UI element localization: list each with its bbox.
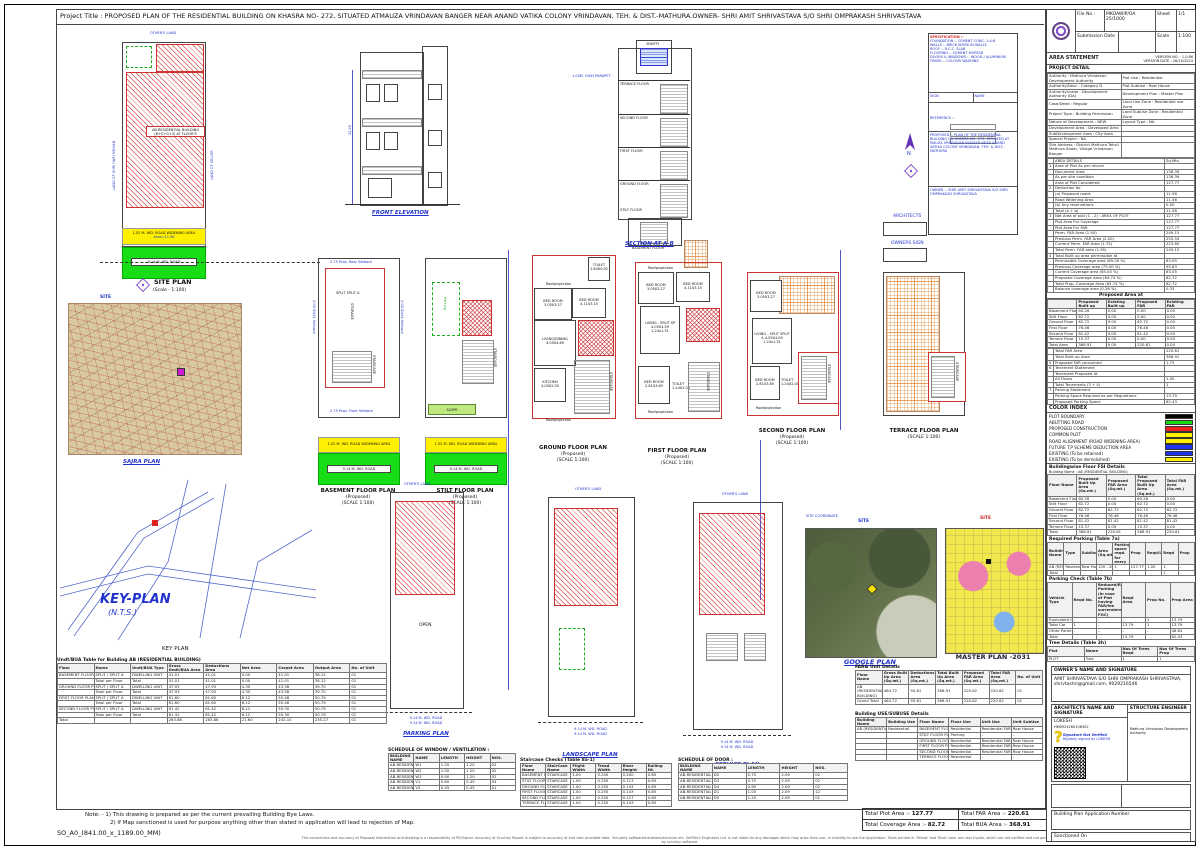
terrace-staircase xyxy=(931,356,955,398)
table-cell: Tree xyxy=(1084,656,1121,662)
use-subuse-block: Building USE/SUBUSE Details Building Nam… xyxy=(855,712,1043,761)
reference-label: REFERENCE :- xyxy=(930,116,954,120)
table-cell: 263.86 xyxy=(167,718,204,724)
table-cell: Project Type : Building Permission xyxy=(1048,110,1122,120)
parking-road2: 9.14 M. WD. ROAD xyxy=(390,721,462,725)
table-cell: - xyxy=(980,755,1011,761)
table-cell: Proposed Built up xyxy=(1077,299,1106,308)
table-cell: AB-RESIDENTIAL BUILDING xyxy=(389,769,414,775)
table-cell xyxy=(1145,570,1161,576)
svg-text:N: N xyxy=(907,151,911,156)
table-cell: NAME xyxy=(712,764,746,773)
parking-road1: 9.14 M. WD. ROAD xyxy=(390,716,462,720)
table-row: Total263.86263.8621.60242.10235.2701 xyxy=(58,718,387,724)
table-cell xyxy=(1048,299,1077,308)
table-cell: 464.72 xyxy=(882,699,909,705)
stilt-slope-label: SLOPE xyxy=(429,405,475,412)
table-cell: Ground Floor xyxy=(1048,507,1077,513)
table-cell xyxy=(1064,570,1080,576)
project-title: Project Title : PROPOSED PLAN OF THE RES… xyxy=(60,12,921,20)
table-row: Floor NameProposed Built Up Area (Sq.mt.… xyxy=(1048,474,1195,496)
total-plot-area-label: Total Plot Area :- xyxy=(865,811,910,817)
table-cell: 235.27 xyxy=(313,718,350,724)
stilt-road-strip: 9.14 M. WD. ROAD xyxy=(425,453,507,485)
first-bed2-label: BED ROOM 4.11X3.15 xyxy=(677,273,709,290)
first-bed1-label: BED ROOM 3.05X3.27 xyxy=(639,273,673,291)
architects-sign-box xyxy=(883,222,927,236)
second-toilet-label: TOILET 1.24X2.00 xyxy=(781,378,795,386)
landscape-others-land: OTHER'S LAND xyxy=(575,487,601,491)
total-far-area-label: Total FAR Area :- xyxy=(961,811,1006,817)
table-cell: 220.62 xyxy=(989,684,1016,699)
second-terrace-hatch xyxy=(779,276,835,314)
structure-engineer-title: STRUCTURE ENGINEER xyxy=(1128,705,1190,713)
table-cell: 263.86 xyxy=(204,718,241,724)
table-cell: NOS. xyxy=(814,764,848,773)
authority-logo xyxy=(1052,22,1070,40)
color-index-label: EXISTING (To be retained) xyxy=(1049,451,1103,456)
submission-date-label: Submission Date xyxy=(1076,32,1119,53)
file-no-value: MKOAWIP/OA 25/1000 xyxy=(1105,10,1156,31)
first-living-label: LIVING - SPLIT SP 4.05X4.09 xyxy=(641,307,679,329)
table-cell: Residential xyxy=(949,755,980,761)
table-row: Vehicle TypeReqd No.Reduced/Reqd Parking… xyxy=(1048,583,1195,618)
table-cell: - xyxy=(1178,570,1194,576)
table-cell: Parking space reqd. for every xyxy=(1113,542,1129,564)
second-bed3-label: BED ROOM 2.81X3.65 xyxy=(751,367,779,386)
table-cell: Total xyxy=(58,718,95,724)
master-plan-title: MASTER PLAN -2031 xyxy=(940,654,1046,662)
stilt-road-label: 9.14 M. WD. ROAD xyxy=(434,465,498,473)
ground-toilet-label: TOILET 1.84X0.92 xyxy=(589,258,609,271)
elevation-window xyxy=(384,132,398,150)
table-row: Total13.7962.43 xyxy=(1048,634,1195,640)
architect-box-title: ARCHITECTS NAME AND SIGNATURE xyxy=(1052,705,1127,718)
site-road-widening-strip: 1.52 M. WD. ROAD WIDENING AREA Area=11.5… xyxy=(122,228,206,245)
table-cell: Proposed FAR xyxy=(1136,299,1165,308)
second-title: SECOND FLOOR PLAN xyxy=(740,428,844,434)
project-title-bar: Project Title : PROPOSED PLAN OF THE RES… xyxy=(56,9,1044,25)
table-cell: Residential xyxy=(1064,564,1080,570)
ground-line xyxy=(345,204,460,205)
first-scale: (SCALE 1:100) xyxy=(628,461,726,466)
elevation-door xyxy=(368,178,392,198)
stilt-hatch-block xyxy=(462,300,492,336)
door-schedule-block: SCHEDULE OF DOOR : BUILDING NAMENAMELENG… xyxy=(678,758,848,801)
table-cell: DWELLING UNIT xyxy=(131,695,168,701)
table-row: Proposed Coverage Area (64.74 %)82.72 xyxy=(1048,275,1195,281)
parking-building-hatch xyxy=(395,501,455,595)
table-cell: Railing Ht. xyxy=(646,764,671,773)
table-cell: SubDevelopment Area : City Area xyxy=(1048,131,1122,137)
table-cell: TERRACE FLOOR PLAN xyxy=(521,801,546,807)
landscape-plot xyxy=(548,497,635,717)
table-cell: 220.62 xyxy=(962,684,989,699)
ground-kitchen: KITCHEN 4.05X2.55 xyxy=(534,368,566,402)
color-index-label: PROPOSED CONSTRUCTION xyxy=(1049,426,1107,431)
color-index-label: PLOT BOUNDARY xyxy=(1049,414,1084,419)
owner-box-title: OWNER'S NAME AND SIGNATURE xyxy=(1052,667,1190,675)
first-bed3: BED ROOM 2.81X3.65 xyxy=(638,366,670,404)
table-cell: 0.00 xyxy=(1165,342,1194,348)
door-schedule-table: BUILDING NAMENAMELENGTHHEIGHTNOS.AB-RESI… xyxy=(678,763,848,801)
table-cell: 01 xyxy=(490,785,515,791)
table-cell: 1.00 xyxy=(571,801,596,807)
total-plot-area: Total Plot Area :- 127.77 xyxy=(863,809,959,819)
sign-row: SIGN NAME xyxy=(929,93,1017,103)
basement-building: STORAGE SPLIT SPLIT A STAIRCASE xyxy=(325,268,385,388)
table-cell: StairCase Name xyxy=(546,764,571,773)
table-row: Site Address : District Mathura Tehsil M… xyxy=(1048,142,1195,157)
table-cell: GROUND FLOOR PLAN xyxy=(58,684,95,690)
service-plot xyxy=(693,502,783,730)
table-cell: AB (RESIDENTIAL BUILDING) xyxy=(856,684,883,699)
table-cell: Total xyxy=(1048,530,1077,536)
table-cell: Ground Floor xyxy=(1048,320,1077,326)
authority-logo-cell xyxy=(1047,10,1076,52)
total-coverage-area-value: 82.72 xyxy=(928,822,945,828)
section-floor-label: STILT FLOOR xyxy=(620,208,642,212)
ground-bed2: BED ROOM 4.11X3.15 xyxy=(572,288,606,318)
ground-scale: (SCALE 1:100) xyxy=(524,458,622,463)
table-cell: Case/Deed : Regular xyxy=(1048,99,1122,109)
table-cell: Prop No. xyxy=(1146,583,1171,618)
ground-toilet: TOILET 1.84X0.92 xyxy=(588,257,610,281)
owner-title-box: OWNER :- SHRI AMIT SHRIVASTAVA S/O SHRI … xyxy=(929,187,1017,223)
first-sub: (Proposed) xyxy=(628,455,726,460)
authority-name: Mathura Vrindavan Development Authority xyxy=(1128,713,1190,749)
table-cell: Total xyxy=(1048,570,1064,576)
table-cell: Development Plan : Master Plan xyxy=(1121,89,1195,99)
table-cell: SECOND FLOOR PLAN xyxy=(521,795,546,801)
table-cell: FIRST FLOOR PLAN xyxy=(521,790,546,796)
table-row: TERRACE FLOOR PLANSTAIRCASE1.000.2500.14… xyxy=(521,801,672,807)
elevation-window xyxy=(428,130,442,146)
table-cell: GROUND FLOOR PLAN xyxy=(521,784,546,790)
table-cell: 220.62 xyxy=(962,699,989,705)
color-index-label: ABUTTING ROAD xyxy=(1049,420,1084,425)
table-cell xyxy=(1080,570,1096,576)
table-cell: Nos Of Trees Prop xyxy=(1158,647,1195,656)
version-date: VERSION DATE : 26/10/2024 xyxy=(1144,59,1193,63)
sajra-plan-title: SAJRA PLAN xyxy=(123,459,160,465)
basement-setback-left: 2.00 Side1 Setback xyxy=(312,300,316,334)
key-plan-nts: (N.T.S.) xyxy=(108,608,137,617)
table-cell: Name xyxy=(1084,647,1121,656)
table-cell: AB (RESIDENTIAL BUILDING) xyxy=(1048,564,1064,570)
table-cell: Second Floor xyxy=(1048,331,1077,337)
second-bed1-label: BED ROOM 3.05X3.27 xyxy=(751,281,781,299)
table-row: AB (RESIDENTIAL BUILDING)464.7295.81368.… xyxy=(856,684,1043,699)
sign-cell: SIGN xyxy=(929,93,974,102)
table-cell: AB-RESIDENTIAL BUILDING xyxy=(679,773,713,779)
elevation-window xyxy=(384,84,398,102)
table-cell: STILT FLOOR PLAN xyxy=(918,733,949,739)
ground-roofprojection-top: Roofprojection xyxy=(546,282,571,286)
table-row: Building NameBuilding UseFloor NameFloor… xyxy=(856,718,1043,727)
unit-bua-table-block: Undt/BUA Table for Building AB (RESIDENT… xyxy=(57,658,387,724)
table-cell: Land SubUse Zone : Residential Zone xyxy=(1121,110,1195,120)
table-cell: 368.91 xyxy=(936,699,963,705)
architect-structure-box: ARCHITECTS NAME AND SIGNATURE LOKESH HM0… xyxy=(1051,704,1191,782)
application-number-box: Building Plan Application Number xyxy=(1051,810,1191,830)
stilt-slope: SLOPE xyxy=(428,404,476,415)
table-row: Balance coverage area (0.26 %)0.33 xyxy=(1048,287,1195,293)
table-cell: Total FAR Area (Sq.mt.) xyxy=(1165,474,1194,496)
table-cell: Total Built Up Area (Sq.mt.) xyxy=(936,671,963,685)
ground-title: GROUND FLOOR PLAN xyxy=(524,445,622,451)
basement-road-strip: 9.14 M. WD. ROAD xyxy=(318,453,400,485)
table-cell: HEIGHT xyxy=(780,764,814,773)
table-cell: AB-RESIDENTIAL BUILDING xyxy=(679,795,713,801)
sajra-site-label: SITE xyxy=(100,295,111,300)
color-index-label: EXISTING (To be demolished) xyxy=(1049,457,1110,462)
color-index-row: EXISTING (To be demolished) xyxy=(1047,457,1195,463)
key-plan-title: KEY-PLAN xyxy=(100,592,171,607)
table-cell: HEIGHT xyxy=(465,754,490,763)
table-cell: Proposed Built Up Area (Sq.mt.) xyxy=(1077,474,1106,496)
color-chip xyxy=(1165,414,1193,420)
stilt-staircase-label: STAIRCASE xyxy=(493,348,497,367)
sajra-map xyxy=(68,303,242,455)
color-chip xyxy=(1165,432,1193,438)
table-cell: PLOT xyxy=(1048,656,1085,662)
table-cell: Total Proposed Built Up Area (Sq.mt.) xyxy=(1136,474,1165,496)
required-parking-table: Building NameTypeSubUseArea (Sq.mt.)Park… xyxy=(1047,542,1195,576)
table-cell: 95.81 xyxy=(909,699,936,705)
table-cell: Nos Of Trees Reqd xyxy=(1121,647,1158,656)
table-cell xyxy=(1072,634,1097,640)
table-cell: Residential FAR xyxy=(980,749,1011,755)
key-plan-caption: KEY PLAN xyxy=(162,646,189,652)
table-cell: Proposed FAR Area (Sq.mt.) xyxy=(962,671,989,685)
table-row: FloorNameUndt/BUA TypeGross Undt/BUA Are… xyxy=(58,664,387,673)
ground-roofprojection-bottom: Roofprojection xyxy=(546,418,571,422)
note-line-2: 2) If Map sanctioned is used for purpose… xyxy=(110,820,415,826)
site-building-label: AB-RESIDENTIAL BUILDING (B+S+G+3) AT FLO… xyxy=(146,126,205,137)
table-cell: Prop Area xyxy=(1170,583,1195,618)
table-cell: Development Area : Developed Area xyxy=(1048,125,1122,131)
color-chip xyxy=(1165,438,1193,444)
total-plot-area-value: 127.77 xyxy=(912,811,933,817)
second-sub: (Proposed) xyxy=(740,435,844,440)
ground-bed2-label: BED ROOM 4.11X3.15 xyxy=(573,289,605,306)
owner-signature-box: OWNER'S NAME AND SIGNATURE AMIT SHRIVAST… xyxy=(1051,666,1191,702)
total-coverage-area: Total Coverage Area :- 82.72 xyxy=(863,820,959,830)
second-roofprojection: Roofprojection xyxy=(756,406,781,410)
table-cell: 368.91 xyxy=(1077,530,1106,536)
site-land-left-label: LAND OF SHRI HARI MOHAN xyxy=(112,110,116,190)
table-cell: AB-RESIDENTIAL BUILDING xyxy=(679,784,713,790)
master-plan-map xyxy=(945,528,1044,654)
drawing-sheet: Project Title : PROPOSED PLAN OF THE RES… xyxy=(0,0,1200,849)
table-cell: Building Name xyxy=(1048,542,1064,564)
table-cell xyxy=(887,755,918,761)
table-cell: 0.85 xyxy=(646,801,671,807)
table-cell: Reduced/Reqd Parking (in case of Plot ha… xyxy=(1097,583,1122,618)
staircase-checks-block: Staircase Checks (Table 8a-1) Floor Name… xyxy=(520,758,672,807)
parking-road-centerline xyxy=(380,712,472,713)
ground-bed1: BED ROOM 3.05X3.27 xyxy=(534,288,572,320)
table-cell: 100 - 200 xyxy=(1096,564,1112,570)
table-cell: AB-RESIDENTIAL BUILDING xyxy=(679,779,713,785)
table-cell: 0.143 xyxy=(621,801,646,807)
table-cell: STAIRCASE xyxy=(546,784,571,790)
basement-storage-label: STORAGE xyxy=(350,303,354,320)
table-cell: Floor Name xyxy=(856,671,883,685)
parking-others-land: OTHER'S LAND xyxy=(404,482,430,486)
section-stair-flight xyxy=(660,151,688,180)
google-site-label: SITE xyxy=(858,519,869,524)
table-cell: AB-RESIDENTIAL BUILDING xyxy=(389,774,414,780)
table-cell: FIRST FLOOR PLAN xyxy=(918,744,949,750)
table-cell: Floor xyxy=(58,664,95,673)
color-chip xyxy=(1165,426,1193,432)
file-no-label: File No : xyxy=(1076,10,1105,31)
stilt-parking-label: Parking xyxy=(443,297,447,310)
color-index-label: FUTURE T.P SCHEME DEDUCTION AREA xyxy=(1049,445,1131,450)
table-row: AB-RESIDENTIAL BUILDINGD51.202.0901 xyxy=(679,795,848,801)
color-index-label: ROAD ALIGNMENT (ROAD WIDENING AREA) xyxy=(1049,439,1140,444)
right-panel: File No : MKOAWIP/OA 25/1000 Sheet 1/1 S… xyxy=(1046,9,1196,842)
table-cell: Equivalent Car Space xyxy=(1048,617,1073,623)
table-cell: 62.43 xyxy=(1170,634,1195,640)
table-cell: Net Area xyxy=(240,664,277,673)
table-cell: STAIRCASE xyxy=(546,801,571,807)
section-parapet-label: 1.00M. HIGH PARAPET xyxy=(572,74,611,78)
table-cell: Residential FAR xyxy=(980,738,1011,744)
table-row: BUILDING NAMENAMELENGTHHEIGHTNOS. xyxy=(389,754,516,763)
service-others-land: OTHER'S LAND xyxy=(722,492,748,496)
tree-details-table: PlotNameNos Of Trees ReqdNos Of Trees Pr… xyxy=(1047,646,1195,662)
service-building-hatch xyxy=(699,513,765,615)
table-cell: 62.43 xyxy=(1165,399,1195,405)
table-row: Authority : Mathura Vrindavan Developmen… xyxy=(1048,74,1195,84)
table-cell: No. of Unit xyxy=(350,664,387,673)
area-details-table: AREA DETAILSSq.Mts.1Area of Plot As per … xyxy=(1047,158,1195,293)
service-tank-detail xyxy=(706,633,738,661)
far-unit-table: Floor NameGross Built Up Area (Sq.mt.)De… xyxy=(855,670,1043,705)
sheet-value: 1/1 xyxy=(1177,10,1195,31)
table-cell: Grand Total xyxy=(856,699,883,705)
table-cell: Type xyxy=(1064,542,1080,564)
table-cell: AB-RESIDENTIAL BUILDING xyxy=(389,785,414,791)
master-site-marker xyxy=(986,559,991,564)
ground-staircase xyxy=(574,360,610,414)
table-cell: SECOND FLOOR PLAN xyxy=(918,749,949,755)
north-arrow-icon: N xyxy=(903,132,917,156)
table-cell: Land Use Zone : Residential use Zone xyxy=(1121,99,1195,109)
table-row: Total Area368.910.00220.610.00 xyxy=(1048,342,1195,348)
table-row: Total368.91220.61368.91220.61 xyxy=(1048,530,1195,536)
table-cell: STAIRCASE xyxy=(546,795,571,801)
table-cell: Plot xyxy=(1048,647,1085,656)
table-cell: TERRACE FLOOR PLAN xyxy=(918,755,949,761)
table-cell: AuthorityGrade : Development Authority (… xyxy=(1048,89,1122,99)
table-cell xyxy=(1129,570,1145,576)
table-cell: 01 xyxy=(1016,684,1043,699)
color-chip xyxy=(1165,420,1193,426)
table-cell: 0.45 xyxy=(439,785,464,791)
sheet-header: File No : MKOAWIP/OA 25/1000 Sheet 1/1 S… xyxy=(1047,10,1195,53)
table-cell: AB (RESIDENTIAL BUILDING) xyxy=(856,727,887,733)
table-cell: Building Use xyxy=(887,718,918,727)
elevation-window xyxy=(366,84,380,102)
proposed-area-table: Proposed Built upExisting Built upPropos… xyxy=(1047,299,1195,349)
stilt-staircase xyxy=(462,340,494,384)
section-slab-ground xyxy=(618,180,690,181)
table-cell: Riser Height xyxy=(621,764,646,773)
disclaimer: The correctness and accuracy of Proposal… xyxy=(300,836,1060,844)
landscape-road1: 9.14 M. WD. ROAD xyxy=(548,727,633,731)
section-stair-flight xyxy=(660,118,688,147)
table-cell: Row House xyxy=(1080,564,1096,570)
table-cell: STILT FLOOR PLAN xyxy=(521,779,546,785)
project-detail-table: Authority : Mathura Vrindavan Developmen… xyxy=(1047,73,1195,158)
section-floor-label: TERRACE FLOOR xyxy=(620,82,649,86)
window-schedule-block: SCHEDULE OF WINDOW / VENTILATION : BUILD… xyxy=(388,748,516,791)
table-cell: Carpet Area xyxy=(277,664,314,673)
parking-check-table: Vehicle TypeReqd No.Reduced/Reqd Parking… xyxy=(1047,582,1195,640)
parking-plot: OPEN xyxy=(390,492,464,709)
table-row: Case/Deed : RegularLand Use Zone : Resid… xyxy=(1048,99,1195,109)
table-cell: Basement Floor xyxy=(1048,309,1077,315)
basement-widening-strip: 1.52 M. WD. ROAD WIDENING AREA xyxy=(318,437,400,453)
sajra-site-marker xyxy=(177,368,185,376)
second-staircase xyxy=(801,356,827,400)
section-slab-first xyxy=(618,147,690,148)
site-plan-title: SITE PLAN xyxy=(154,279,192,287)
reference-bar xyxy=(950,124,996,130)
table-cell: 0.00 xyxy=(1106,342,1135,348)
ground-sub: (Proposed) xyxy=(524,452,622,457)
table-cell: STAIRCASE xyxy=(546,790,571,796)
basement-setback-front: 2.75 Prop. Front Setback xyxy=(330,409,373,413)
table-row: 3Net Area of plot (1 - 2) : AREA OF PLOT… xyxy=(1048,214,1195,220)
table-cell: SubUse xyxy=(1080,542,1096,564)
color-index-title: COLOR INDEX xyxy=(1047,405,1195,413)
table-cell: No. of Unit xyxy=(1016,671,1043,685)
table-cell: Reqd xyxy=(1162,542,1178,564)
table-cell: Undt/BUA Type xyxy=(131,664,168,673)
table-cell: Deductions Area (Sq.mt.) xyxy=(909,671,936,685)
table-cell: 0.45 xyxy=(465,785,490,791)
table-cell: 220.61 xyxy=(1165,530,1194,536)
scale-label: Scale xyxy=(1156,32,1177,53)
table-row: Total Prop. Coverage Area (64.74 %)82.72 xyxy=(1048,281,1195,287)
table-cell xyxy=(1096,570,1112,576)
first-roofprojection-top: Roofprojection xyxy=(648,266,673,270)
table-cell: 2.09 xyxy=(780,795,814,801)
second-staircase-label: STAIRCASE xyxy=(827,364,831,383)
dimension-line xyxy=(508,250,509,690)
section-mumty-info xyxy=(640,48,668,66)
elevation-band-2 xyxy=(362,118,422,127)
table-cell xyxy=(1097,634,1122,640)
table-cell: 1 xyxy=(1162,570,1178,576)
first-bed3-label: BED ROOM 2.81X3.65 xyxy=(639,367,669,388)
second-scale: (SCALE 1:100) xyxy=(740,441,844,446)
table-cell: 0.250 xyxy=(596,801,621,807)
service-pit-detail xyxy=(744,633,766,661)
table-cell: Unit SubUse xyxy=(1011,718,1042,727)
table-cell: Reqd Area xyxy=(1121,583,1146,618)
color-index-label: COMMON PLOT xyxy=(1049,432,1081,437)
table-cell: BASEMENT FLOOR PLAN + STORAGE xyxy=(918,727,949,733)
table-cell: 127.77 xyxy=(1129,564,1145,570)
table-row: Floor NameStairCase NameFlight WidthTrea… xyxy=(521,764,672,773)
site-plan-scale: (Scale - 1:100) xyxy=(153,288,186,293)
